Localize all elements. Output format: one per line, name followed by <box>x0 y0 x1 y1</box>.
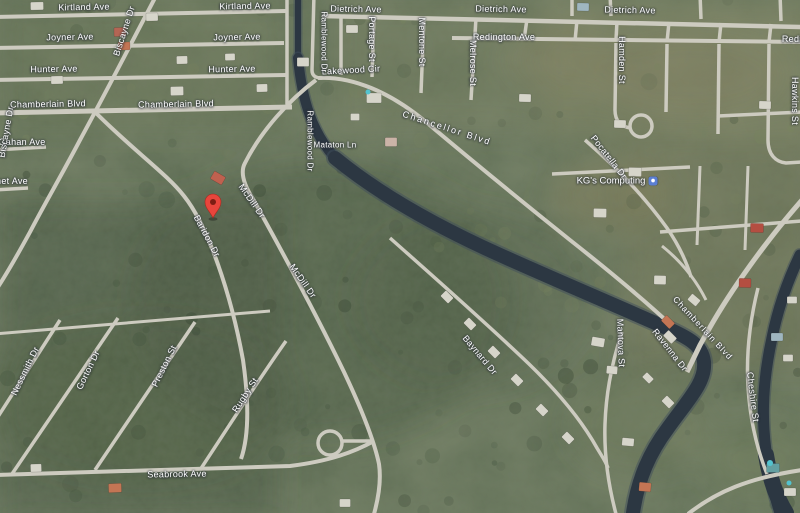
place-label-kgs-computing[interactable]: KG's Computing <box>577 176 658 187</box>
computer-store-place-icon <box>648 177 657 186</box>
place-label-text: KG's Computing <box>577 176 646 187</box>
satellite-map[interactable]: Kirtland AveKirtland AveJoyner AveJoyner… <box>0 0 800 513</box>
satellite-imagery <box>0 0 800 513</box>
